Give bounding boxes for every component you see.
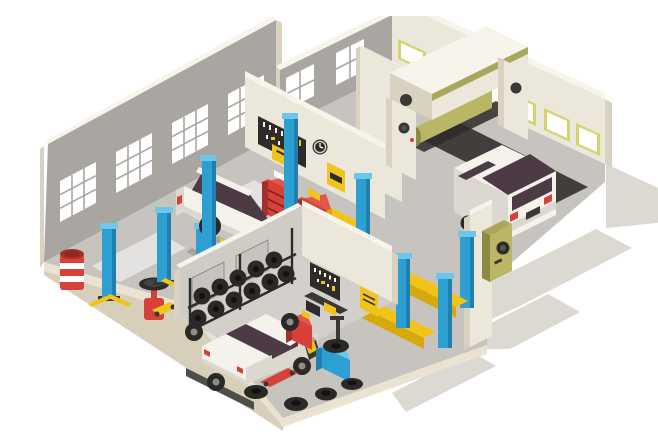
lift-column	[436, 273, 454, 348]
illustration-garage-scene: Low-poly isometric cutaway illustration …	[40, 16, 658, 431]
lift-column	[282, 113, 298, 210]
vent-icon	[400, 94, 412, 106]
wash-kiosk	[482, 220, 512, 282]
wall-clock-icon	[313, 140, 328, 155]
lift-column	[458, 231, 476, 308]
gantry-column-right	[504, 60, 528, 140]
indicator-light	[410, 138, 414, 142]
kiosk-side	[482, 231, 490, 282]
vent-icon	[511, 83, 522, 94]
scene-canvas	[40, 16, 658, 431]
oil-drum	[60, 249, 84, 290]
